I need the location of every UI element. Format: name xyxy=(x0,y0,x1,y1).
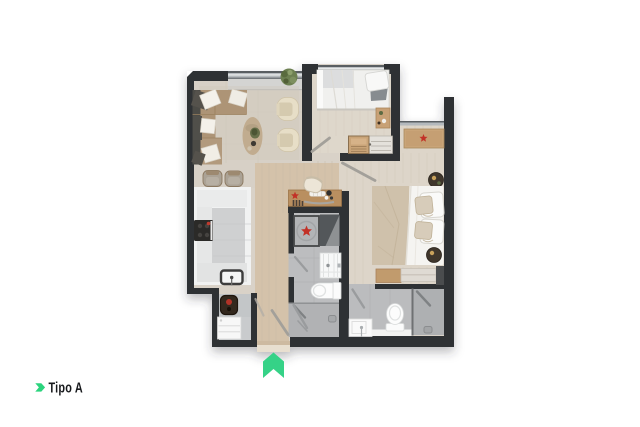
svg-text:Tipo A: Tipo A xyxy=(49,380,84,397)
